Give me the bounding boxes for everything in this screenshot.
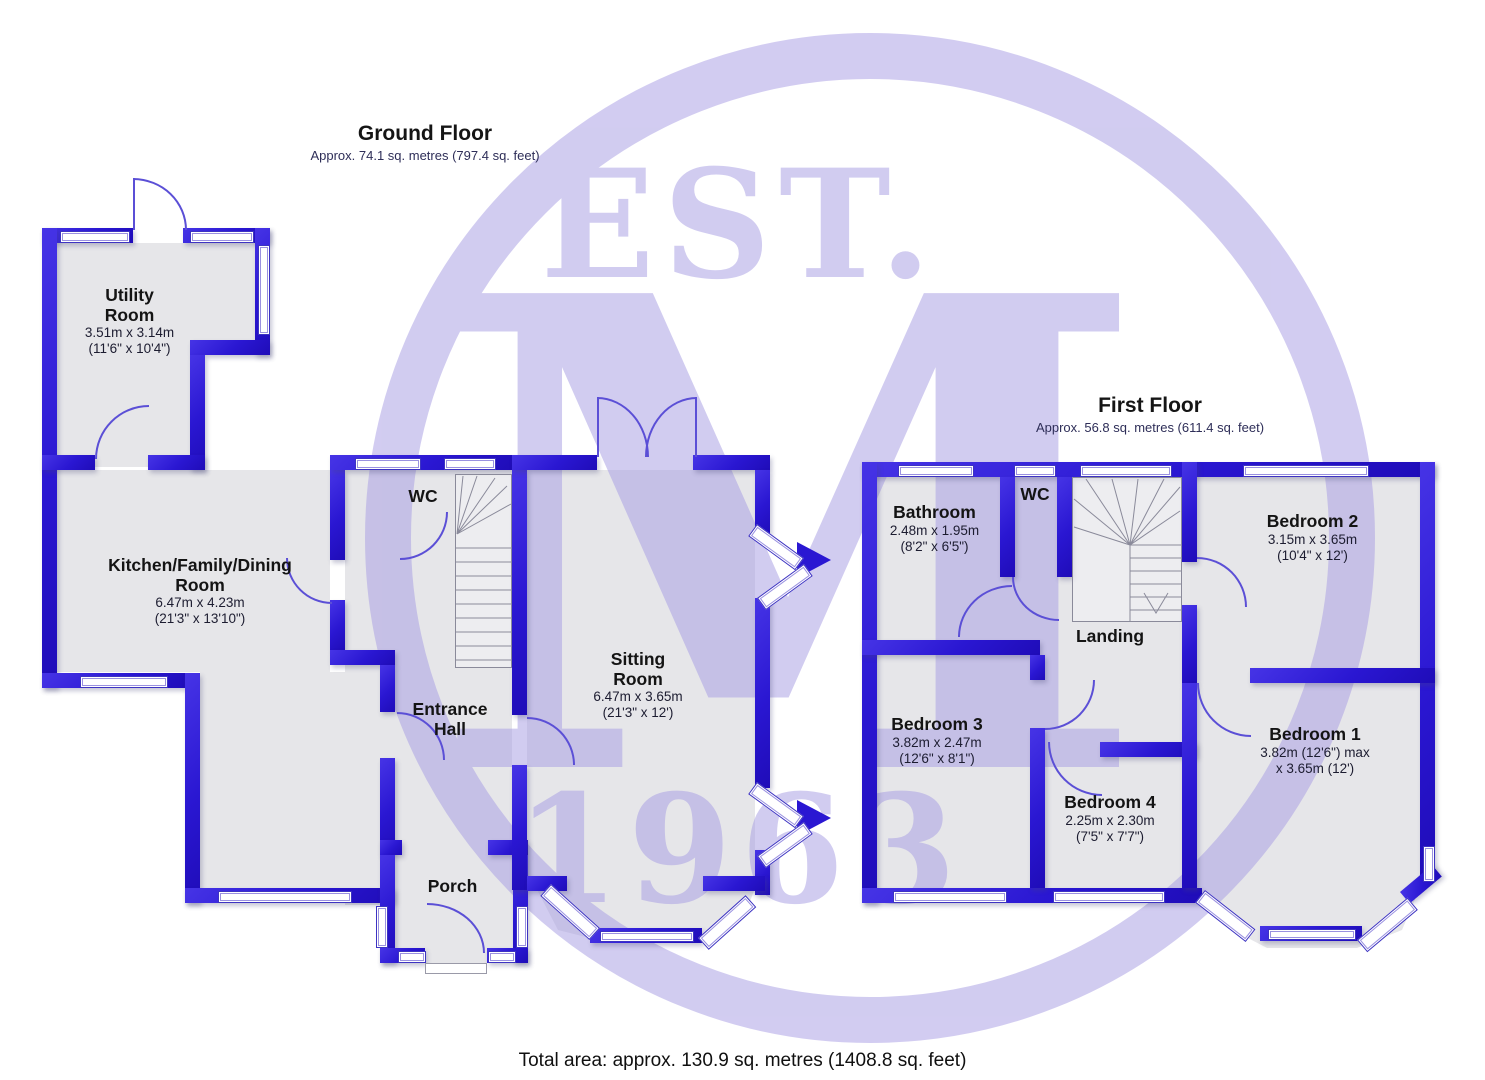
room-name: Hall	[395, 720, 505, 740]
wall	[1182, 605, 1197, 683]
room-name: Sitting	[558, 650, 718, 670]
room-name: Kitchen/Family/Dining	[75, 556, 325, 576]
window	[444, 458, 496, 470]
label-sitting-room: Sitting Room 6.47m x 3.65m (21'3" x 12')	[558, 650, 718, 722]
wall	[512, 455, 597, 470]
room-dimensions: 6.47m x 3.65m	[558, 689, 718, 705]
room-dimensions: (11'6" x 10'4")	[62, 341, 197, 357]
room-dimensions: 2.48m x 1.95m	[862, 523, 1007, 539]
label-kitchen: Kitchen/Family/Dining Room 6.47m x 4.23m…	[75, 556, 325, 628]
wall	[1250, 668, 1435, 683]
wall	[330, 650, 395, 665]
window	[757, 564, 813, 610]
label-wc-first: WC	[1009, 485, 1061, 505]
window	[1053, 891, 1165, 903]
watermark-est: EST.	[450, 150, 1030, 300]
wall	[1030, 655, 1045, 680]
room-name: Utility	[62, 286, 197, 306]
door-step	[425, 963, 487, 974]
wall	[703, 876, 765, 891]
wall	[693, 455, 770, 470]
window	[60, 231, 130, 243]
staircase	[1072, 477, 1182, 622]
wall	[862, 640, 1040, 655]
room-name: Entrance	[395, 700, 505, 720]
window	[258, 245, 270, 335]
ground-floor-title: Ground Floor	[250, 122, 600, 145]
room-dimensions: (8'2" x 6'5")	[862, 539, 1007, 555]
first-floor-area: Approx. 56.8 sq. metres (611.4 sq. feet)	[980, 420, 1320, 435]
room-name: Room	[558, 670, 718, 690]
wall	[185, 673, 200, 903]
window	[1268, 929, 1356, 940]
label-bedroom1: Bedroom 1 3.82m (12'6") max x 3.65m (12'…	[1225, 725, 1405, 777]
staircase	[455, 474, 512, 668]
room-dimensions: 3.15m x 3.65m	[1230, 532, 1395, 548]
wall	[1182, 462, 1197, 562]
door-arc-french-left	[597, 397, 649, 457]
window	[1080, 465, 1172, 477]
wall	[380, 665, 395, 712]
room-name: WC	[1009, 485, 1061, 505]
door-arc	[133, 178, 187, 230]
window	[1423, 846, 1435, 882]
label-landing: Landing	[1050, 627, 1170, 647]
label-porch: Porch	[410, 877, 495, 897]
room-name: Bedroom 2	[1230, 512, 1395, 532]
room-name: WC	[398, 487, 448, 507]
room-dimensions: 3.82m x 2.47m	[862, 735, 1012, 751]
room-name: Bedroom 4	[1035, 793, 1185, 813]
wall	[190, 340, 270, 355]
room-name: Bedroom 3	[862, 715, 1012, 735]
window	[898, 465, 974, 477]
room-name: Landing	[1050, 627, 1170, 647]
wall	[42, 455, 95, 470]
ground-floor-area: Approx. 74.1 sq. metres (797.4 sq. feet)	[250, 148, 600, 163]
room-dimensions: (21'3" x 12')	[558, 705, 718, 721]
window	[516, 906, 528, 948]
ground-floor-title-block: Ground Floor Approx. 74.1 sq. metres (79…	[250, 122, 600, 163]
window	[190, 231, 254, 243]
wall	[190, 355, 205, 470]
label-bedroom2: Bedroom 2 3.15m x 3.65m (10'4" x 12')	[1230, 512, 1395, 564]
first-floor-title: First Floor	[980, 394, 1320, 417]
window	[600, 931, 694, 942]
room-dimensions: 3.82m (12'6") max	[1225, 745, 1405, 761]
window	[757, 822, 813, 868]
window	[1014, 465, 1056, 477]
window	[488, 951, 516, 963]
wall	[512, 765, 527, 890]
window	[398, 951, 426, 963]
room-dimensions: (21'3" x 13'10")	[75, 611, 325, 627]
wall	[512, 470, 527, 715]
window	[748, 782, 804, 828]
wall	[1182, 683, 1197, 888]
room-dimensions: 2.25m x 2.30m	[1035, 813, 1185, 829]
label-entrance-hall: Entrance Hall	[395, 700, 505, 739]
room-dimensions: (7'5" x 7'7")	[1035, 829, 1185, 845]
window	[1243, 465, 1369, 477]
window	[80, 676, 168, 688]
wall	[755, 598, 770, 788]
window	[893, 891, 1007, 903]
label-bedroom3: Bedroom 3 3.82m x 2.47m (12'6" x 8'1")	[862, 715, 1012, 767]
wall	[380, 840, 402, 855]
label-bedroom4: Bedroom 4 2.25m x 2.30m (7'5" x 7'7")	[1035, 793, 1185, 845]
room-name: Room	[62, 306, 197, 326]
window	[748, 524, 804, 570]
door-arc-french-right	[645, 397, 697, 457]
room-dimensions: 3.51m x 3.14m	[62, 325, 197, 341]
room-dimensions: 6.47m x 4.23m	[75, 595, 325, 611]
label-wc-ground: WC	[398, 487, 448, 507]
room-name: Room	[75, 576, 325, 596]
total-area-text: Total area: approx. 130.9 sq. metres (14…	[0, 1050, 1485, 1072]
room-name: Porch	[410, 877, 495, 897]
room-dimensions: (12'6" x 8'1")	[862, 751, 1012, 767]
floorplan: EST. M 1963	[0, 0, 1485, 1080]
room-name: Bathroom	[862, 503, 1007, 523]
wall	[148, 455, 205, 470]
wall	[330, 470, 345, 560]
window	[355, 458, 421, 470]
label-bathroom: Bathroom 2.48m x 1.95m (8'2" x 6'5")	[862, 503, 1007, 555]
room-dimensions: (10'4" x 12')	[1230, 548, 1395, 564]
window	[376, 906, 388, 948]
label-utility-room: Utility Room 3.51m x 3.14m (11'6" x 10'4…	[62, 286, 197, 358]
room-name: Bedroom 1	[1225, 725, 1405, 745]
first-floor-title-block: First Floor Approx. 56.8 sq. metres (611…	[980, 394, 1320, 435]
room-dimensions: x 3.65m (12')	[1225, 761, 1405, 777]
window	[218, 891, 352, 903]
wall	[330, 600, 345, 650]
